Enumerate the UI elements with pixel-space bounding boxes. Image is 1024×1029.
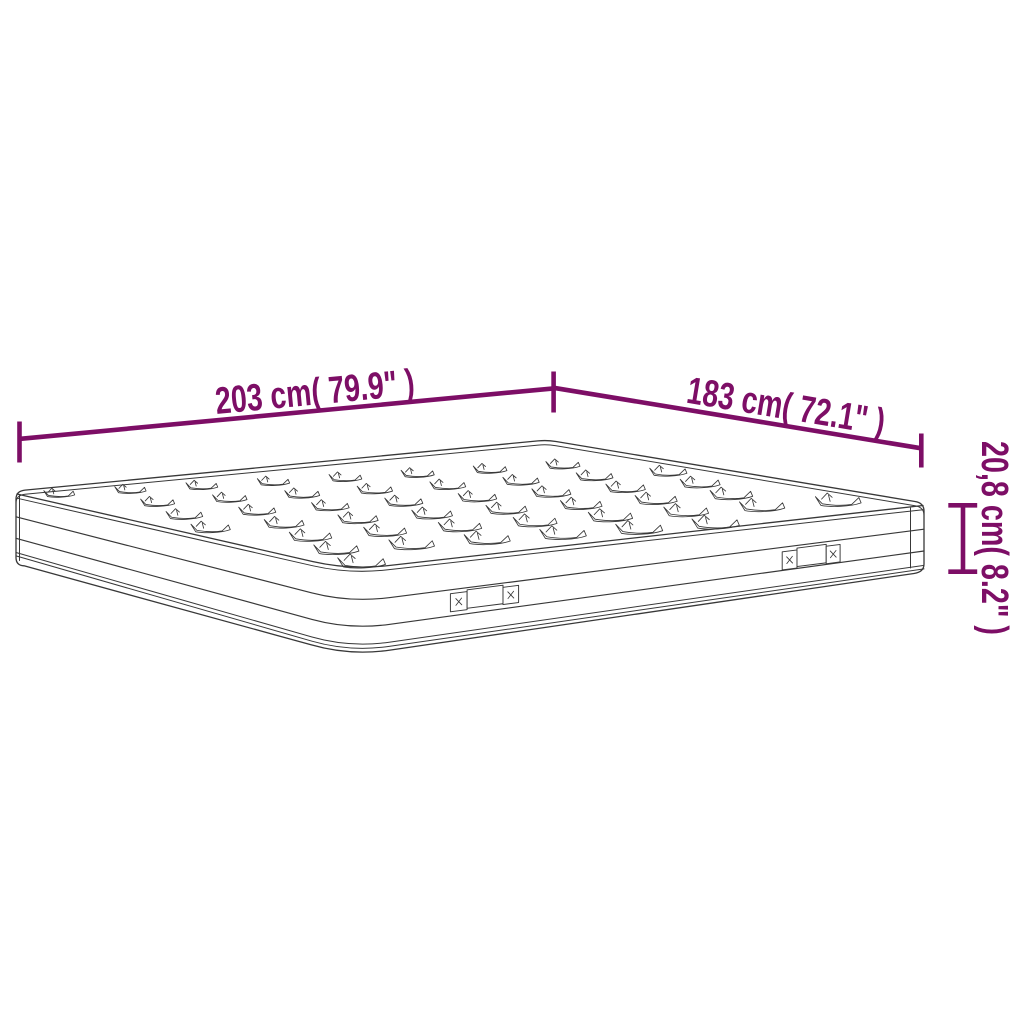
svg-text:20,8 cm( 8.2" ): 20,8 cm( 8.2" ) xyxy=(973,441,1015,635)
